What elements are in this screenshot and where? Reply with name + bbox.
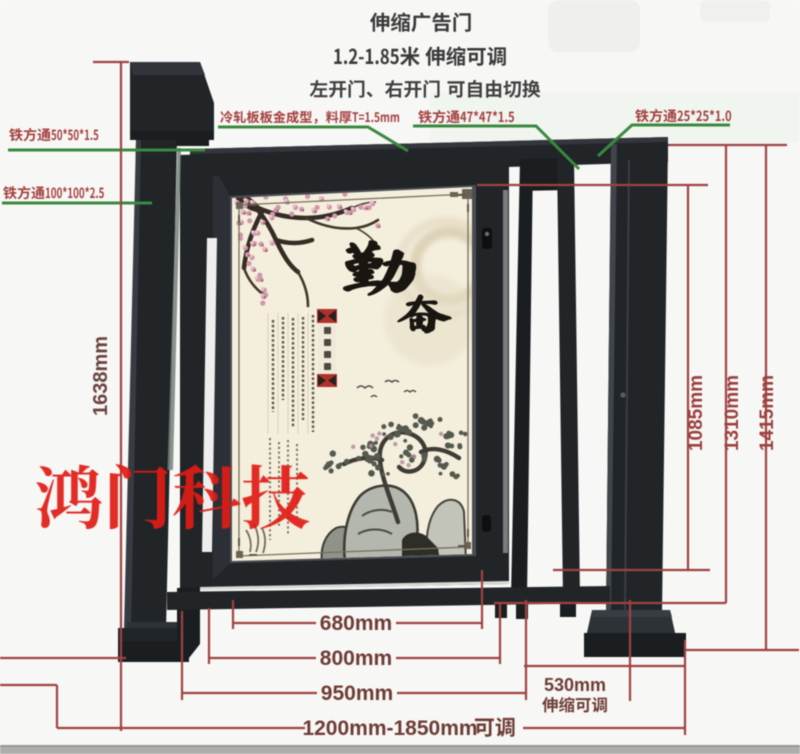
svg-text:1085mm: 1085mm bbox=[686, 375, 707, 451]
svg-text:1310mm: 1310mm bbox=[722, 375, 743, 451]
svg-text:1415mm: 1415mm bbox=[757, 375, 778, 451]
svg-text:680mm: 680mm bbox=[320, 612, 392, 635]
svg-text:530mm: 530mm bbox=[544, 675, 606, 695]
svg-text:1638mm: 1638mm bbox=[90, 336, 112, 416]
svg-text:950mm: 950mm bbox=[321, 682, 393, 705]
svg-text:800mm: 800mm bbox=[320, 647, 392, 670]
svg-text:1200mm-1850mm: 1200mm-1850mm bbox=[302, 717, 477, 740]
